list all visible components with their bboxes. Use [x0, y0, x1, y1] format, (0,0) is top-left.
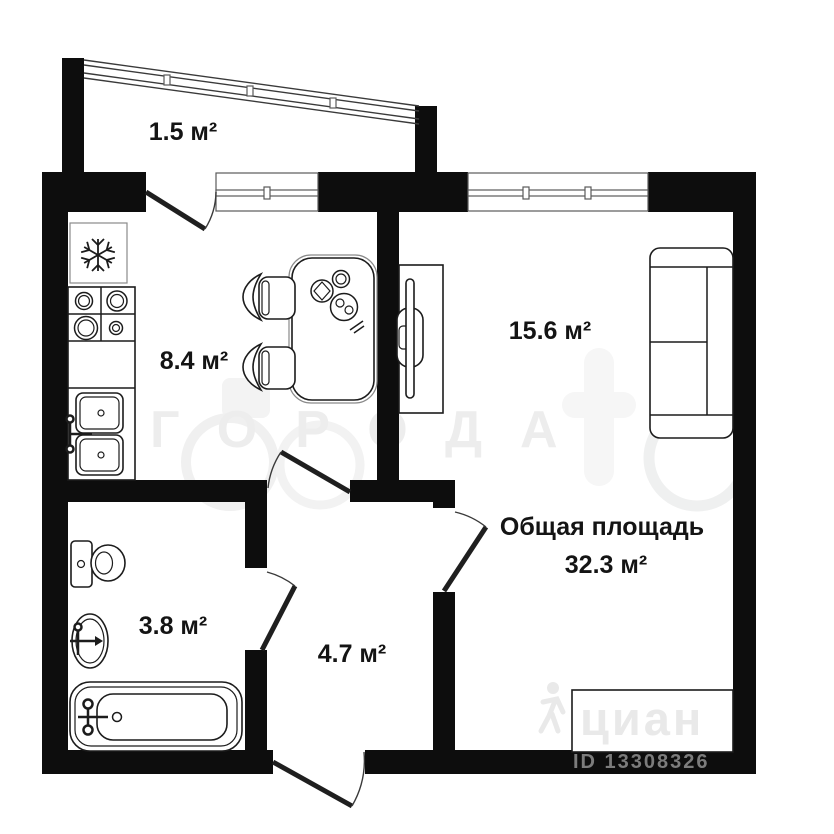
total-area-title: Общая площадь — [500, 513, 704, 541]
balcony-area-label: 1.5 м² — [149, 118, 218, 146]
tv-stand-icon — [397, 265, 443, 413]
kitchen-bathroom-wall — [42, 480, 267, 502]
left-wall — [42, 172, 68, 774]
hallway-living-wall — [433, 592, 455, 752]
tv-icon — [406, 279, 414, 398]
floor-plan-image: ГОРОДА — [0, 0, 834, 834]
kitchen-area-label: 8.4 м² — [160, 347, 229, 375]
bathroom-area-label: 3.8 м² — [139, 612, 208, 640]
kitchen-living-wall — [377, 212, 399, 502]
floor-plan-page: ГОРОДА — [0, 0, 834, 834]
total-area-value: 32.3 м² — [565, 551, 647, 579]
hallway-area-label: 4.7 м² — [318, 640, 387, 668]
bathroom-hallway-wall — [245, 650, 267, 752]
right-wall — [733, 172, 756, 774]
bathtub-icon — [70, 682, 242, 751]
sofa-icon — [650, 248, 733, 438]
balcony-left-wall — [62, 58, 84, 176]
bathroom-hallway-wall — [245, 502, 267, 568]
hallway-living-wall — [433, 480, 455, 508]
bottom-wall — [42, 750, 273, 774]
glazing-mullion — [330, 98, 336, 108]
chair-icon — [243, 274, 295, 320]
bottom-wall — [365, 750, 756, 774]
top-wall — [318, 172, 468, 212]
living-room-area-label: 15.6 м² — [509, 317, 591, 345]
living-room-window — [468, 173, 648, 211]
kitchen-window — [216, 173, 318, 211]
wardrobe-icon — [572, 690, 733, 752]
chair-icon — [243, 344, 295, 390]
fridge-icon — [70, 223, 127, 283]
balcony-right-wall — [415, 106, 437, 176]
glazing-mullion — [164, 75, 170, 85]
dining-table-icon — [289, 255, 377, 403]
glazing-mullion — [247, 86, 253, 96]
